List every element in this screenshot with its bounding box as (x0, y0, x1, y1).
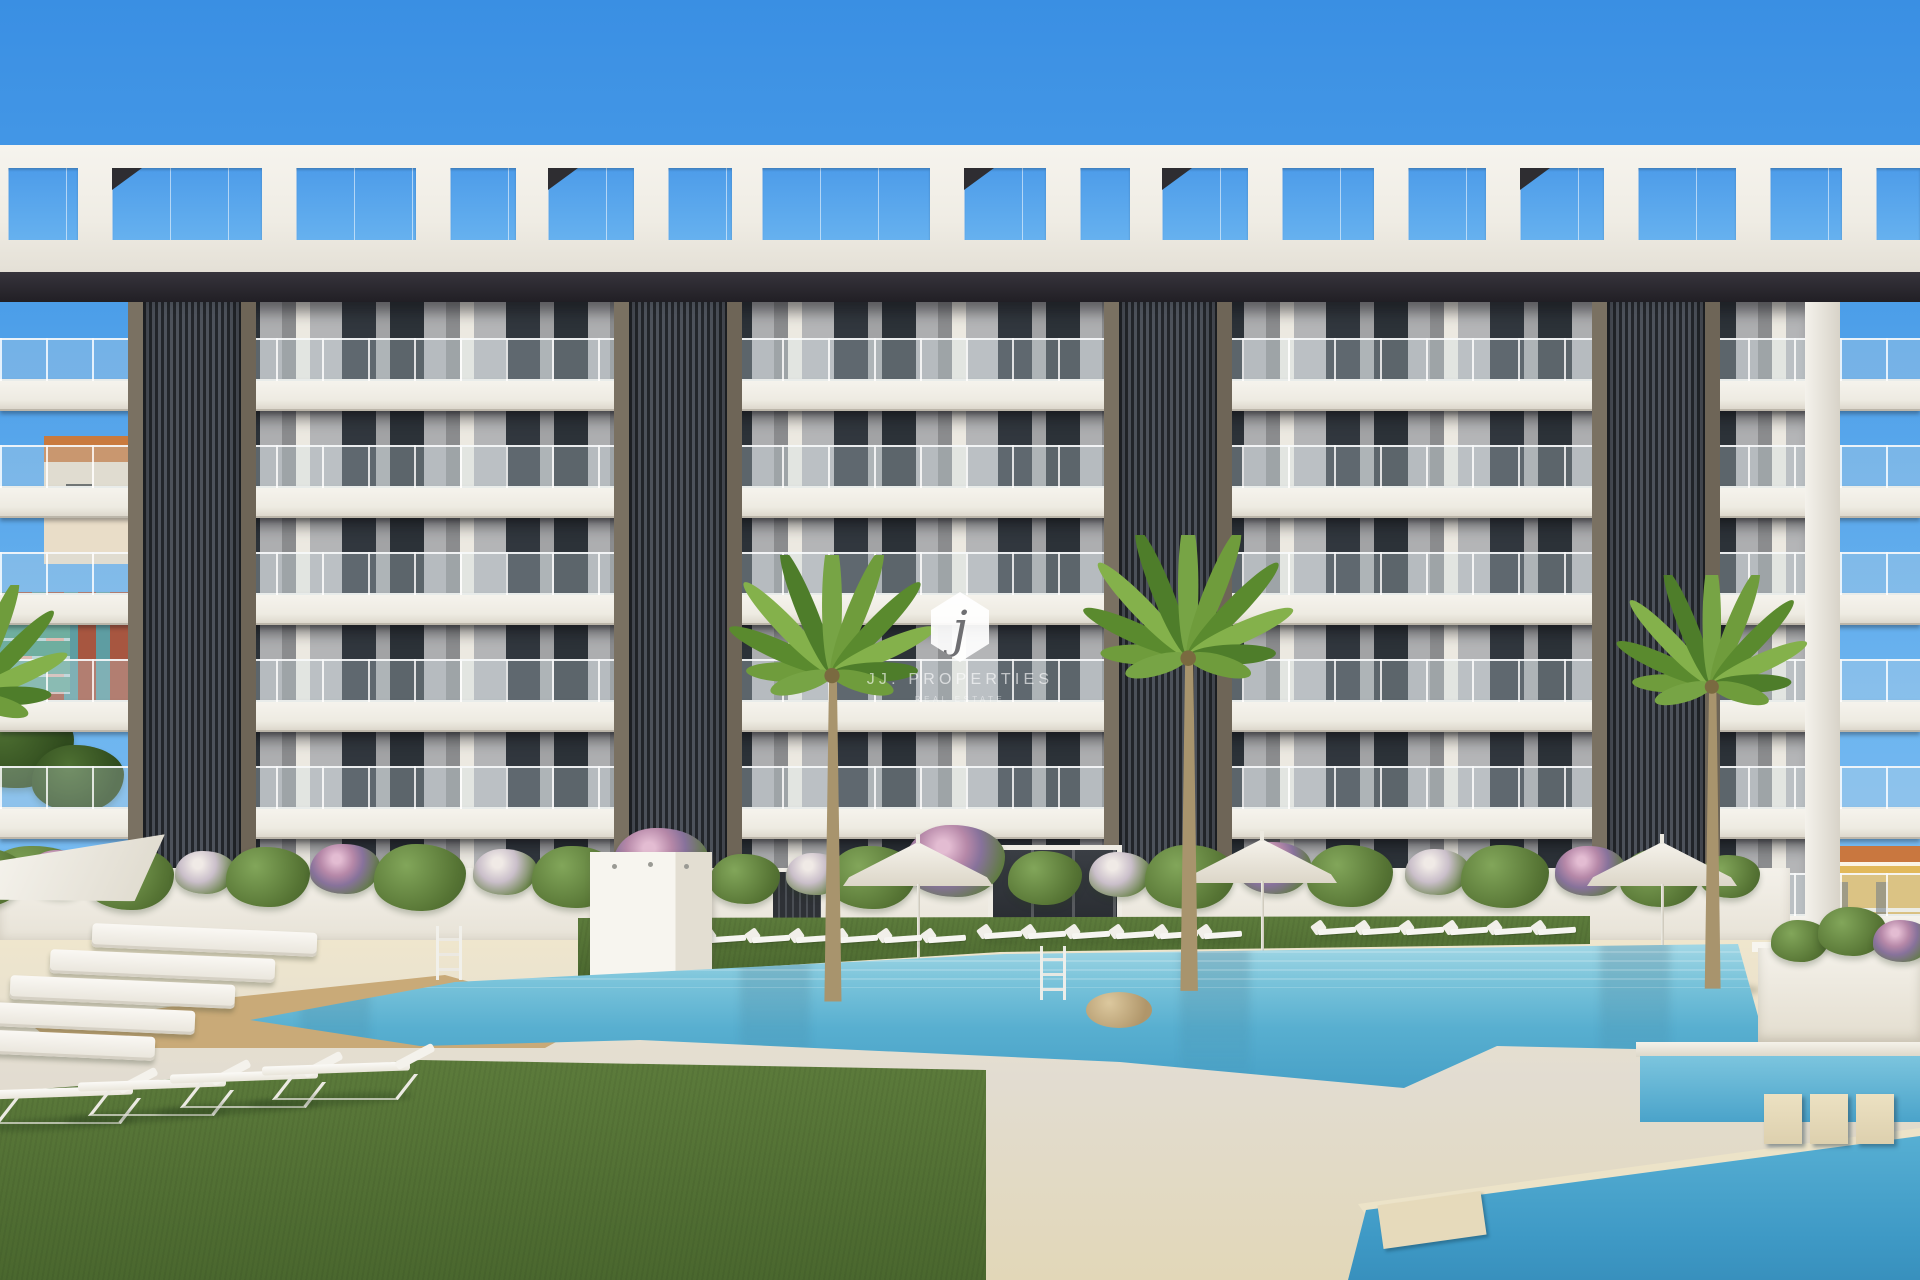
sun-lounger (1400, 920, 1446, 940)
pergola-opening (8, 168, 78, 240)
slat-tower (128, 272, 256, 924)
pool-two-curb (1636, 1042, 1920, 1057)
pergola-opening (450, 168, 516, 240)
pergola-opening (296, 168, 416, 240)
sun-lounger (1444, 920, 1490, 940)
roof-pergola (0, 145, 1920, 272)
watermark: j JJ. PROPERTIES REAL ESTATE (810, 592, 1110, 704)
pool-ladder (436, 926, 462, 980)
stepping-block (1810, 1094, 1848, 1144)
sun-lounger (978, 924, 1024, 944)
pergola-opening (1520, 168, 1604, 240)
hedge-bush (473, 849, 537, 895)
slat-tower-louvres (143, 272, 241, 924)
hedge-bush (1405, 849, 1469, 895)
sun-lounger (1356, 920, 1402, 940)
lounger-shadow (1402, 935, 1444, 940)
pergola-opening (548, 168, 634, 240)
pergola-opening (1408, 168, 1486, 240)
sun-lounger (1488, 920, 1534, 940)
pergola-opening (668, 168, 732, 240)
hedge-bush (310, 844, 380, 894)
pergola-shade-sail (1162, 168, 1192, 190)
hedge-bush (374, 844, 466, 910)
watermark-tagline: REAL ESTATE (810, 695, 1110, 704)
pergola-opening (1162, 168, 1248, 240)
pergola-opening (1876, 168, 1920, 240)
roof-soffit-shadow (0, 272, 1920, 302)
pergola-opening (762, 168, 930, 240)
lounger-shadow (1534, 935, 1576, 940)
pergola-shade-sail (1520, 168, 1550, 190)
pergola-opening (1282, 168, 1374, 240)
lounger-shadow (1358, 935, 1400, 940)
pergola-opening (1080, 168, 1130, 240)
lounger-shadow (980, 939, 1022, 944)
watermark-brand: JJ. PROPERTIES (810, 671, 1110, 689)
lawn-lounger (262, 1052, 440, 1114)
pergola-opening (1638, 168, 1736, 240)
decorative-rock (1086, 992, 1152, 1028)
pergola-opening (1770, 168, 1842, 240)
watermark-logo-hexagon: j (927, 592, 993, 662)
pergola-shade-sail (964, 168, 994, 190)
hedge-bush (1461, 845, 1549, 908)
pergola-opening (112, 168, 262, 240)
lounger-frame (272, 1074, 418, 1100)
property-render: j JJ. PROPERTIES REAL ESTATE (0, 0, 1920, 1280)
lounger-shadow (1446, 935, 1488, 940)
stepping-block (1764, 1094, 1802, 1144)
hedge-bush (1873, 920, 1920, 962)
palm-tree (0, 585, 114, 1008)
pergola-opening (964, 168, 1046, 240)
pergola-shade-sail (548, 168, 578, 190)
watermark-logo-letter: j (952, 604, 968, 654)
stepping-block (1856, 1094, 1894, 1144)
lounger-shadow (1490, 935, 1532, 940)
palm-tree (1571, 575, 1853, 989)
pergola-shade-sail (112, 168, 142, 190)
